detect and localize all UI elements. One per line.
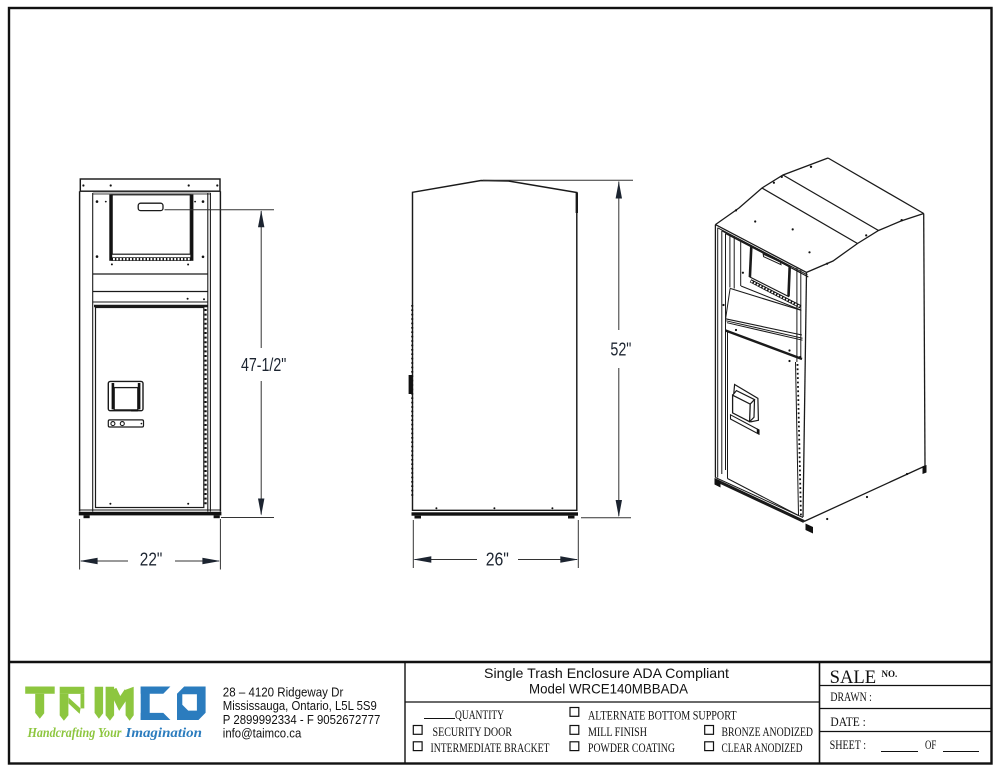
svg-text:info@taimco.ca: info@taimco.ca [223,726,302,741]
svg-text:22": 22" [140,549,163,570]
svg-text:47-1/2": 47-1/2" [241,354,286,375]
svg-text:BRONZE ANODIZED: BRONZE ANODIZED [722,725,814,739]
svg-text:NO.: NO. [882,669,898,679]
svg-text:52": 52" [610,339,631,360]
svg-text:DATE :: DATE : [830,715,866,729]
svg-text:QUANTITY: QUANTITY [455,708,504,722]
svg-text:ALTERNATE BOTTOM SUPPORT: ALTERNATE BOTTOM SUPPORT [588,709,737,723]
svg-text:INTERMEDIATE BRACKET: INTERMEDIATE BRACKET [431,741,550,755]
svg-text:Model WRCE140MBBADA: Model WRCE140MBBADA [529,682,689,697]
svg-text:MILL FINISH: MILL FINISH [588,725,647,739]
svg-text:Handcrafting Your: Handcrafting Your [27,726,122,741]
svg-text:SECURITY DOOR: SECURITY DOOR [433,725,513,739]
svg-text:SALE: SALE [830,667,877,688]
svg-text:26": 26" [486,549,509,570]
svg-text:Imagination: Imagination [124,726,202,741]
svg-text:CLEAR ANODIZED: CLEAR ANODIZED [722,741,803,755]
svg-text:Single Trash Enclosure ADA Com: Single Trash Enclosure ADA Compliant [484,666,729,681]
svg-text:OF: OF [925,738,936,752]
svg-text:SHEET :: SHEET : [830,738,867,752]
svg-text:DRAWN :: DRAWN : [830,690,872,704]
svg-text:POWDER COATING: POWDER COATING [588,741,675,755]
